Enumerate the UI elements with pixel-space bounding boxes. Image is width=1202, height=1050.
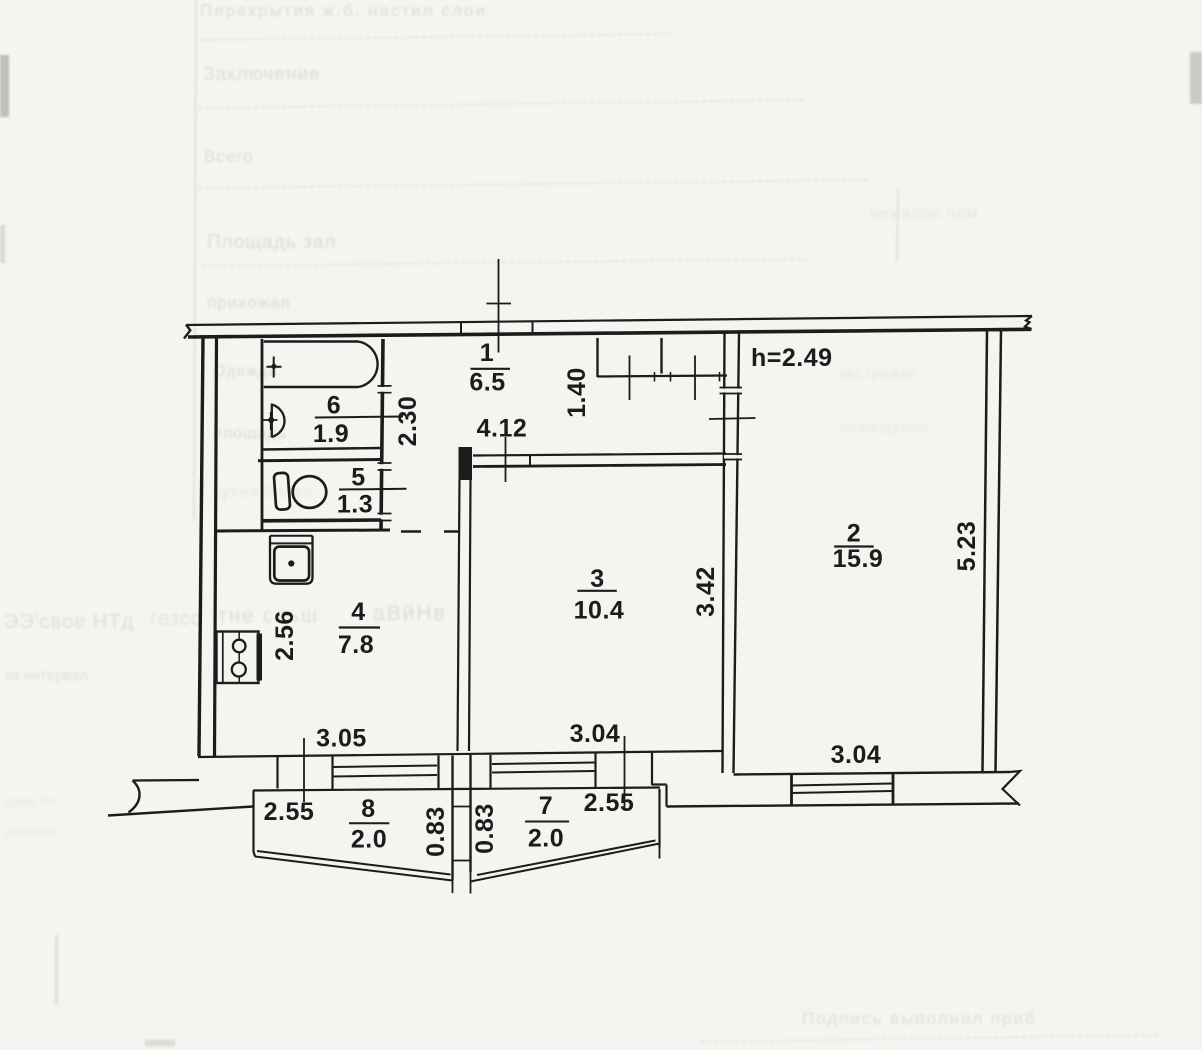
svg-text:Перекрытия ж.б. настил слои: Перекрытия ж.б. настил слои: [200, 1, 487, 20]
svg-text:7: 7: [539, 792, 553, 820]
svg-text:2.0: 2.0: [351, 826, 387, 854]
svg-text:1.40: 1.40: [563, 367, 591, 418]
svg-text:0.83: 0.83: [471, 803, 499, 854]
svg-text:Площадь зал: Площадь зал: [207, 232, 336, 253]
svg-text:3: 3: [590, 565, 604, 593]
svg-text:застройки: застройки: [838, 365, 917, 382]
svg-text:1.9: 1.9: [313, 420, 349, 448]
svg-text:2.55: 2.55: [584, 789, 635, 817]
svg-text:за интервал: за интервал: [4, 667, 88, 684]
svg-text:3.04: 3.04: [570, 720, 621, 748]
svg-text:6.5: 6.5: [469, 369, 505, 397]
svg-text:7.8: 7.8: [338, 631, 374, 659]
svg-text:10.4: 10.4: [574, 597, 625, 625]
svg-text:Заключение: Заключение: [203, 64, 321, 85]
svg-text:Одежда: Одежда: [213, 363, 278, 380]
svg-text:2.55: 2.55: [264, 798, 315, 826]
svg-text:2.56: 2.56: [271, 610, 299, 661]
svg-text:ЭЭ'свое НТд: ЭЭ'свое НТд: [4, 611, 134, 633]
svg-text:0.83: 0.83: [422, 806, 450, 857]
svg-text:4: 4: [351, 598, 365, 626]
svg-text:5.23: 5.23: [953, 521, 981, 572]
svg-text:прихожая: прихожая: [207, 293, 291, 312]
svg-text:даже по: даже по: [4, 793, 57, 809]
svg-text:Всего: Всего: [204, 147, 254, 166]
svg-text:h=2.49: h=2.49: [751, 344, 833, 372]
svg-text:Подпись выполнил приб: Подпись выполнил приб: [802, 1009, 1037, 1028]
svg-text:помещение: помещение: [840, 419, 930, 436]
svg-text:3.42: 3.42: [692, 566, 720, 617]
svg-text:кухня более: кухня более: [213, 484, 314, 501]
svg-text:15.9: 15.9: [833, 545, 884, 573]
svg-text:2: 2: [847, 520, 861, 548]
svg-text:5: 5: [351, 464, 365, 492]
svg-text:1: 1: [480, 339, 494, 367]
svg-text:3.04: 3.04: [831, 741, 882, 769]
svg-text:8: 8: [361, 795, 375, 823]
svg-text:2.30: 2.30: [394, 396, 422, 447]
svg-text:тне сльш: тне сльш: [218, 605, 319, 627]
svg-text:устроен: устроен: [4, 823, 55, 839]
svg-text:аВйНв: аВйНв: [373, 602, 447, 625]
svg-text:1.3: 1.3: [337, 491, 373, 519]
svg-text:4.12: 4.12: [477, 415, 528, 443]
svg-text:площадь: площадь: [213, 425, 287, 442]
svg-text:нежилое пом: нежилое пом: [870, 205, 979, 222]
svg-text:2.0: 2.0: [528, 825, 564, 853]
svg-text:3.05: 3.05: [316, 725, 367, 753]
svg-text:6: 6: [327, 392, 341, 420]
svg-text:гезсо: гезсо: [150, 608, 203, 630]
